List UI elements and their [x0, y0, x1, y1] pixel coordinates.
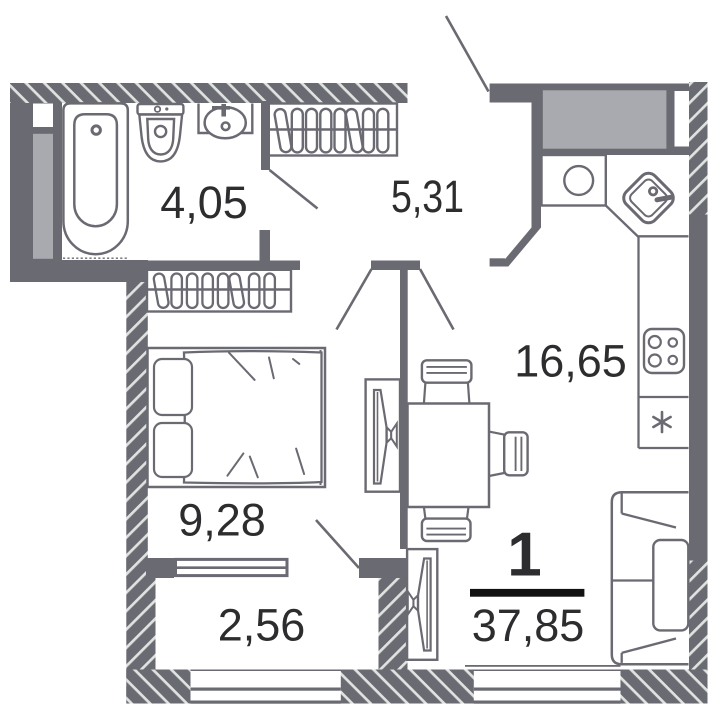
- svg-text:5,31: 5,31: [391, 171, 464, 222]
- svg-text:16,65: 16,65: [514, 336, 627, 387]
- svg-text:2,56: 2,56: [218, 600, 306, 651]
- svg-text:9,28: 9,28: [178, 495, 266, 546]
- svg-text:4,05: 4,05: [160, 177, 248, 228]
- svg-text:1: 1: [507, 521, 541, 590]
- svg-text:37,85: 37,85: [472, 600, 585, 651]
